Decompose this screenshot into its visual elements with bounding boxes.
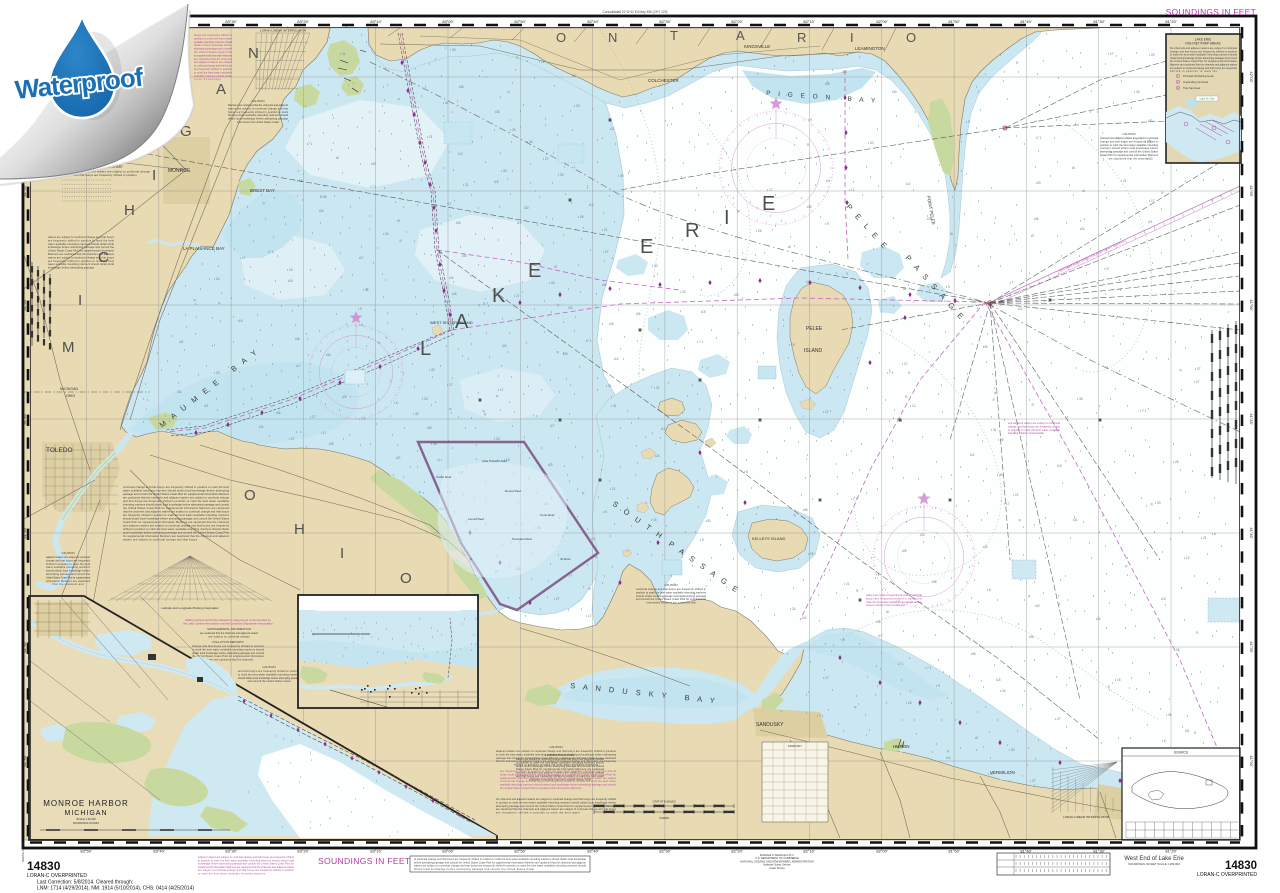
svg-text:24: 24 [289, 279, 293, 283]
svg-text:intending mariners should obta: intending mariners should obtain local k… [123, 503, 229, 507]
svg-text:6: 6 [989, 588, 991, 592]
svg-text:17: 17 [360, 256, 364, 260]
svg-text:41°35': 41°35' [22, 641, 27, 652]
svg-text:waters are subject to continua: waters are subject to continual change a… [123, 538, 198, 542]
svg-text:41°30': 41°30' [22, 755, 27, 766]
svg-text:26: 26 [343, 395, 347, 399]
svg-text:Consolidated 22 W 42 Ed May: Consolidated 22 W 42 Ed May 456 (CHT 123… [603, 10, 668, 14]
svg-text:shifted in position to mark th: shifted in position to mark the best wat… [123, 527, 230, 531]
svg-text:83°10': 83°10' [370, 19, 381, 24]
svg-text:shifted in position to mark th: shifted in position to mark the [1170, 70, 1218, 73]
svg-text:21: 21 [825, 410, 829, 414]
svg-text:9: 9 [843, 638, 845, 642]
svg-text:6: 6 [593, 537, 595, 541]
svg-text:21: 21 [205, 404, 209, 408]
svg-text:82°30': 82°30' [659, 19, 670, 24]
svg-text:HORIZONTAL DATUM: HORIZONTAL DATUM [545, 753, 575, 757]
svg-text:I: I [78, 292, 82, 309]
svg-text:33: 33 [549, 463, 553, 467]
svg-text:31: 31 [180, 340, 184, 344]
svg-text:are frequently shifted in posi: are frequently shifted in position to ma… [123, 513, 230, 517]
svg-text:LORAN LINEAR INTERPOLATOR: LORAN LINEAR INTERPOLATOR [260, 29, 307, 33]
svg-text:YARDS: YARDS [659, 816, 669, 820]
svg-text:should obtain local knowledge: should obtain local knowledge before att… [123, 517, 230, 521]
svg-text:36: 36 [804, 508, 808, 512]
svg-text:21: 21 [1203, 536, 1207, 540]
svg-text:R: R [685, 220, 699, 242]
svg-text:30: 30 [893, 90, 897, 94]
svg-text:33: 33 [735, 293, 739, 297]
svg-text:available intending mariners s: available intending mariners should obta… [529, 778, 591, 781]
svg-text:A: A [736, 28, 745, 43]
svg-text:6: 6 [746, 470, 748, 474]
svg-text:the United States Coast Pilot: the United States Coast Pilot for supple… [500, 787, 582, 790]
svg-text:81°20': 81°20' [1165, 19, 1176, 24]
svg-text:CAUTION: CAUTION [549, 745, 562, 749]
svg-text:17: 17 [1110, 52, 1114, 56]
svg-text:I: I [340, 545, 344, 562]
svg-text:and consult the United States: and consult the United States Coast [248, 680, 291, 683]
svg-text:CAUTION: CAUTION [1122, 132, 1135, 136]
svg-text:SANDUSKY: SANDUSKY [788, 744, 803, 748]
svg-text:6: 6 [789, 245, 791, 249]
svg-text:30: 30 [870, 141, 874, 145]
svg-text:27: 27 [312, 415, 316, 419]
svg-text:N: N [608, 30, 617, 45]
svg-text:36: 36 [603, 283, 607, 287]
svg-text:are cautioned that the channel: are cautioned that the channels and adja… [123, 496, 230, 500]
svg-text:82°00': 82°00' [876, 849, 887, 854]
svg-text:Trap Net Areas: Trap Net Areas [1183, 86, 1201, 90]
svg-text:I: I [850, 30, 854, 45]
svg-text:17: 17 [825, 676, 829, 680]
svg-text:36: 36 [1030, 635, 1034, 639]
svg-text:36: 36 [564, 352, 568, 356]
svg-text:33: 33 [682, 290, 686, 294]
svg-text:I: I [152, 167, 156, 184]
svg-text:MONROE: MONROE [168, 168, 191, 174]
svg-text:Latitude and Longitude Plottin: Latitude and Longitude Plotting Interpol… [161, 606, 218, 610]
svg-text:81°50': 81°50' [948, 849, 959, 854]
svg-text:SOUNDINGS IN FEET: SOUNDINGS IN FEET [318, 856, 411, 866]
svg-text:83°30': 83°30' [225, 849, 236, 854]
svg-text:6: 6 [605, 510, 607, 514]
svg-text:82°40': 82°40' [587, 19, 598, 24]
svg-text:26: 26 [453, 292, 457, 296]
svg-text:14830: 14830 [1225, 860, 1257, 872]
svg-text:30: 30 [372, 162, 376, 166]
svg-text:36: 36 [984, 345, 988, 349]
svg-text:continual change and that buoy: continual change and that buoys are freq… [123, 485, 229, 489]
svg-text:41°55': 41°55' [1249, 185, 1254, 196]
svg-text:31: 31 [1074, 518, 1078, 522]
svg-text:81°30': 81°30' [1093, 19, 1104, 24]
svg-text:TOLEDO: TOLEDO [46, 447, 73, 454]
svg-text:27: 27 [516, 294, 520, 298]
svg-text:7 1: 7 1 [269, 250, 274, 254]
svg-text:36: 36 [972, 652, 976, 656]
svg-text:15: 15 [997, 678, 1001, 682]
svg-text:7 1: 7 1 [819, 714, 824, 718]
svg-text:21: 21 [465, 183, 469, 187]
svg-text:12: 12 [907, 182, 911, 186]
svg-text:41°30': 41°30' [1249, 755, 1254, 766]
svg-text:21: 21 [1015, 493, 1019, 497]
svg-text:21: 21 [429, 135, 433, 139]
svg-text:26: 26 [903, 549, 907, 553]
svg-text:41°45': 41°45' [22, 413, 27, 424]
svg-text:41°40': 41°40' [1249, 527, 1254, 538]
svg-text:33: 33 [576, 104, 580, 108]
svg-text:41°45': 41°45' [1249, 413, 1254, 424]
svg-text:27: 27 [397, 456, 401, 460]
svg-text:Cone Reef: Cone Reef [540, 513, 555, 517]
svg-text:SCALE 1:30,000: SCALE 1:30,000 [76, 817, 96, 821]
svg-text:O: O [400, 570, 412, 587]
svg-text:31: 31 [613, 404, 617, 408]
svg-text:26: 26 [1175, 460, 1179, 464]
svg-text:15: 15 [653, 518, 657, 522]
svg-text:knowledge before attempting pa: knowledge before attempting passage [48, 267, 95, 270]
svg-text:FISH NET/TRAP AREAS: FISH NET/TRAP AREAS [1185, 42, 1220, 46]
svg-text:33: 33 [496, 437, 500, 441]
svg-text:17: 17 [500, 388, 504, 392]
svg-text:SOURCE: SOURCE [1174, 751, 1189, 755]
svg-text:27: 27 [1196, 380, 1200, 384]
svg-text:83°00': 83°00' [442, 849, 453, 854]
svg-text:that the channels and adjacent: that the channels and adjacent waters ar… [123, 510, 230, 514]
svg-text:17: 17 [904, 362, 908, 366]
svg-text:26: 26 [428, 426, 432, 430]
svg-text:17: 17 [242, 256, 246, 260]
svg-text:7 1: 7 1 [932, 26, 937, 30]
svg-text:26: 26 [826, 82, 830, 86]
svg-text:27: 27 [1057, 717, 1061, 721]
svg-text:9: 9 [360, 307, 362, 311]
svg-text:31: 31 [1186, 729, 1190, 733]
svg-text:21: 21 [846, 582, 850, 586]
svg-text:7 1: 7 1 [361, 417, 366, 421]
svg-text:15: 15 [810, 552, 814, 556]
svg-text:VERMILION: VERMILION [990, 770, 1015, 775]
svg-text:7 1: 7 1 [308, 142, 313, 146]
svg-text:6: 6 [337, 156, 339, 160]
svg-text:27: 27 [545, 157, 549, 161]
svg-text:41°50': 41°50' [22, 299, 27, 310]
svg-text:Principal Gill Netting Areas: Principal Gill Netting Areas [1183, 74, 1214, 78]
svg-text:17: 17 [448, 202, 452, 206]
svg-text:6: 6 [396, 401, 398, 405]
svg-text:21: 21 [1149, 220, 1153, 224]
svg-text:36: 36 [460, 85, 464, 89]
svg-text:9: 9 [948, 285, 950, 289]
svg-text:Crane Reef: Crane Reef [436, 475, 452, 479]
svg-text:12: 12 [590, 203, 594, 207]
svg-text:15: 15 [1058, 464, 1062, 468]
svg-text:R: R [797, 30, 806, 45]
svg-text:33: 33 [512, 128, 516, 132]
svg-text:7 1: 7 1 [899, 662, 904, 666]
svg-text:local knowledge before attempt: local knowledge before attempting passag… [123, 531, 229, 535]
svg-text:33: 33 [1157, 501, 1161, 505]
svg-text:24: 24 [908, 701, 912, 705]
svg-text:33: 33 [330, 442, 334, 446]
svg-text:82°00': 82°00' [876, 19, 887, 24]
svg-text:36: 36 [877, 620, 881, 624]
svg-text:7 1: 7 1 [372, 185, 377, 189]
svg-text:Coast Survey: Coast Survey [769, 866, 785, 870]
svg-text:are frequently shifted in posi: are frequently shifted in position to ma… [496, 812, 580, 815]
svg-text:are cautioned that the channel: are cautioned that the channels [1109, 157, 1151, 160]
svg-text:41°55': 41°55' [22, 185, 27, 196]
svg-text:26: 26 [1136, 90, 1140, 94]
svg-text:36: 36 [999, 473, 1003, 477]
svg-text:N: N [248, 45, 259, 62]
svg-text:24: 24 [385, 232, 389, 236]
svg-text:36: 36 [323, 195, 327, 199]
svg-text:9: 9 [398, 219, 400, 223]
svg-text:E: E [640, 236, 653, 258]
svg-text:6: 6 [1083, 189, 1085, 193]
svg-text:82°30': 82°30' [659, 849, 670, 854]
svg-text:21: 21 [611, 127, 615, 131]
svg-text:30: 30 [620, 174, 624, 178]
svg-text:6: 6 [1073, 166, 1075, 170]
svg-text:31: 31 [445, 101, 449, 105]
svg-text:27: 27 [1032, 779, 1036, 783]
svg-text:12: 12 [851, 188, 855, 192]
svg-text:21: 21 [656, 386, 660, 390]
svg-text:POLLUTION REPORTS: POLLUTION REPORTS [212, 640, 243, 644]
svg-text:33: 33 [707, 519, 711, 523]
svg-text:are subject to continual chang: are subject to continual change [209, 635, 251, 638]
svg-text:the Lake Carriers Association: the Lake Carriers Association and the Ca… [183, 621, 273, 625]
svg-text:PELEE: PELEE [806, 326, 823, 332]
svg-text:26: 26 [1176, 648, 1180, 652]
svg-text:Lake St Clair: Lake St Clair [1200, 97, 1215, 101]
svg-text:and adjacent waters are subjec: and adjacent waters are subject to conti… [123, 524, 230, 528]
svg-text:17: 17 [518, 221, 522, 225]
svg-text:21: 21 [1123, 179, 1127, 183]
svg-text:12: 12 [971, 453, 975, 457]
svg-text:SOUNDINGS IN FEET: SOUNDINGS IN FEET [73, 821, 100, 825]
svg-text:6: 6 [1164, 739, 1166, 743]
svg-text:31: 31 [608, 384, 612, 388]
svg-text:E: E [762, 193, 775, 215]
svg-text:7 1: 7 1 [699, 340, 704, 344]
svg-text:15: 15 [239, 319, 243, 323]
svg-text:31: 31 [827, 179, 831, 183]
svg-text:27: 27 [291, 437, 295, 441]
svg-text:82°10': 82°10' [803, 19, 814, 24]
svg-text:CAUTION: CAUTION [664, 583, 677, 587]
svg-text:26: 26 [758, 229, 762, 233]
svg-text:30: 30 [1011, 748, 1015, 752]
svg-text:24: 24 [551, 281, 555, 285]
svg-text:21: 21 [612, 487, 616, 491]
svg-text:15: 15 [702, 310, 706, 314]
svg-text:21: 21 [604, 228, 608, 232]
svg-text:31: 31 [178, 390, 182, 394]
svg-text:intending mariners should obta: intending mariners should obtain [1008, 432, 1045, 435]
svg-text:81°50': 81°50' [948, 19, 959, 24]
svg-text:12: 12 [912, 404, 916, 408]
svg-text:33: 33 [921, 533, 925, 537]
svg-text:17: 17 [323, 431, 327, 435]
svg-text:M: M [62, 339, 75, 356]
svg-text:24: 24 [216, 277, 220, 281]
svg-text:that the channels and: that the channels and [53, 583, 85, 586]
svg-text:27: 27 [449, 383, 453, 387]
svg-text:T: T [670, 28, 678, 43]
svg-text:WHITE no / 07: WHITE no / 07 [21, 842, 25, 862]
svg-text:MICHIGAN: MICHIGAN [65, 810, 108, 817]
svg-text:LA PLAISANCE BAY: LA PLAISANCE BAY [183, 246, 225, 251]
svg-text:Little Pickerel Reef: Little Pickerel Reef [482, 459, 507, 463]
svg-text:12: 12 [662, 427, 666, 431]
svg-text:36: 36 [529, 140, 533, 144]
svg-text:7 1: 7 1 [927, 666, 932, 670]
svg-text:LEAMINGTON: LEAMINGTON [855, 46, 885, 51]
svg-text:O: O [906, 30, 916, 45]
svg-text:30: 30 [560, 173, 564, 177]
svg-text:33: 33 [457, 221, 461, 225]
svg-text:local knowledge: local knowledge [194, 78, 222, 81]
svg-text:KELLEYS ISLAND: KELLEYS ISLAND [752, 536, 785, 541]
svg-text:12: 12 [1019, 307, 1023, 311]
svg-text:27: 27 [573, 74, 577, 78]
svg-text:36: 36 [1168, 713, 1172, 717]
svg-text:33: 33 [1149, 119, 1153, 123]
svg-text:LORAN-C OVERPRINTED: LORAN-C OVERPRINTED [1197, 872, 1257, 878]
svg-text:9: 9 [589, 587, 591, 591]
svg-text:12: 12 [541, 60, 545, 64]
svg-text:water available intending mari: water available intending mariners shoul… [123, 489, 230, 493]
svg-text:9: 9 [810, 118, 812, 122]
svg-text:41°40': 41°40' [22, 527, 27, 538]
svg-text:82°10': 82°10' [803, 849, 814, 854]
svg-text:L: L [420, 338, 431, 360]
svg-text:LNM: 1714 (4/29/2014), NM: 191: LNM: 1714 (4/29/2014), NM: 1914 (5/10/20… [37, 886, 194, 892]
svg-text:24: 24 [503, 344, 507, 348]
svg-text:6: 6 [976, 736, 978, 740]
svg-text:SUPPLEMENTAL INFORMATION: SUPPLEMENTAL INFORMATION [207, 627, 251, 631]
svg-text:82°50': 82°50' [514, 19, 525, 24]
svg-text:17: 17 [1006, 502, 1010, 506]
svg-text:36: 36 [1035, 217, 1039, 221]
svg-text:31: 31 [993, 428, 997, 432]
svg-text:24: 24 [656, 454, 660, 458]
svg-text:30: 30 [452, 48, 456, 52]
svg-text:15: 15 [289, 268, 293, 272]
svg-text:7 1: 7 1 [889, 371, 894, 375]
svg-text:information Mariners are cauti: information Mariners are cautioned that [647, 602, 696, 605]
svg-text:CAUTION: CAUTION [61, 551, 74, 555]
svg-text:15: 15 [1117, 678, 1121, 682]
svg-text:7 1: 7 1 [587, 339, 592, 343]
svg-text:33: 33 [327, 353, 331, 357]
svg-text:for supplemental information M: for supplemental information Mariners ar… [123, 534, 229, 538]
svg-text:Impounding net Areas: Impounding net Areas [1183, 80, 1209, 84]
svg-text:17: 17 [879, 634, 883, 638]
svg-text:17: 17 [769, 188, 773, 192]
svg-text:36: 36 [808, 205, 812, 209]
svg-text:K: K [492, 285, 506, 307]
svg-text:83°00': 83°00' [442, 19, 453, 24]
svg-text:33: 33 [503, 169, 507, 173]
svg-text:83°20': 83°20' [297, 849, 308, 854]
svg-text:passage and consult the United: passage and consult the United States Co… [123, 492, 230, 496]
svg-text:33: 33 [424, 397, 428, 401]
svg-text:83°50': 83°50' [80, 849, 91, 854]
svg-text:LORAN-C OVERPRINTED: LORAN-C OVERPRINTED [27, 873, 87, 879]
svg-text:STATUTE MILES: STATUTE MILES [652, 800, 675, 804]
svg-text:I: I [724, 207, 730, 229]
svg-text:31: 31 [342, 52, 346, 56]
svg-text:41°50': 41°50' [1249, 299, 1254, 310]
svg-text:24: 24 [1151, 53, 1155, 57]
svg-text:7 1: 7 1 [1037, 136, 1042, 140]
svg-text:to mark the best water availab: to mark the best water available intendi… [198, 873, 266, 876]
svg-text:30: 30 [431, 368, 435, 372]
svg-text:26: 26 [580, 215, 584, 219]
svg-text:27: 27 [556, 597, 560, 601]
svg-text:and consult the United States: and consult the United States Coast [237, 121, 279, 124]
svg-text:12: 12 [459, 152, 463, 156]
svg-text:24: 24 [1097, 617, 1101, 621]
svg-text:6: 6 [887, 610, 889, 614]
svg-text:OHIO: OHIO [66, 394, 75, 398]
svg-text:MONROE HARBOR: MONROE HARBOR [43, 799, 128, 808]
svg-text:7 1: 7 1 [1142, 409, 1147, 413]
svg-text:81°40': 81°40' [1020, 19, 1031, 24]
svg-text:81°20': 81°20' [1165, 849, 1176, 854]
svg-text:H: H [294, 521, 305, 538]
svg-text:SOUNDINGS IN FEET SCALE 1:18: SOUNDINGS IN FEET SCALE 1:180,000 [1128, 862, 1180, 866]
svg-text:27: 27 [1106, 267, 1110, 271]
svg-text:33: 33 [1037, 181, 1041, 185]
svg-text:83°40': 83°40' [153, 849, 164, 854]
svg-text:17: 17 [588, 614, 592, 618]
svg-text:41°35': 41°35' [1249, 641, 1254, 652]
svg-text:30: 30 [463, 254, 467, 258]
svg-text:and that buoys are frequently: and that buoys are frequently shifted in… [123, 499, 230, 503]
svg-text:9: 9 [827, 222, 829, 226]
svg-text:CAUTION: CAUTION [262, 665, 275, 669]
svg-text:12: 12 [947, 756, 951, 760]
svg-text:Round Reef: Round Reef [505, 489, 521, 493]
svg-text:26: 26 [637, 312, 641, 316]
svg-text:27: 27 [605, 250, 609, 254]
svg-text:26: 26 [610, 322, 614, 326]
svg-text:42°00': 42°00' [1249, 71, 1254, 82]
svg-text:E: E [528, 260, 541, 282]
svg-text:27: 27 [1197, 367, 1201, 371]
svg-text:BREST BAY: BREST BAY [250, 188, 275, 193]
svg-text:30: 30 [1036, 604, 1040, 608]
svg-text:LORAN LINEAR INTERPOLATOR: LORAN LINEAR INTERPOLATOR [1063, 815, 1110, 819]
svg-text:83°10': 83°10' [370, 849, 381, 854]
svg-text:H: H [124, 202, 135, 219]
svg-text:36: 36 [365, 288, 369, 292]
svg-text:82°40': 82°40' [587, 849, 598, 854]
svg-text:30: 30 [984, 545, 988, 549]
svg-text:15: 15 [1162, 597, 1166, 601]
svg-text:83°20': 83°20' [297, 19, 308, 24]
svg-text:COLCHESTER: COLCHESTER [648, 78, 680, 83]
svg-text:24: 24 [792, 607, 796, 611]
svg-text:6: 6 [1214, 532, 1216, 536]
